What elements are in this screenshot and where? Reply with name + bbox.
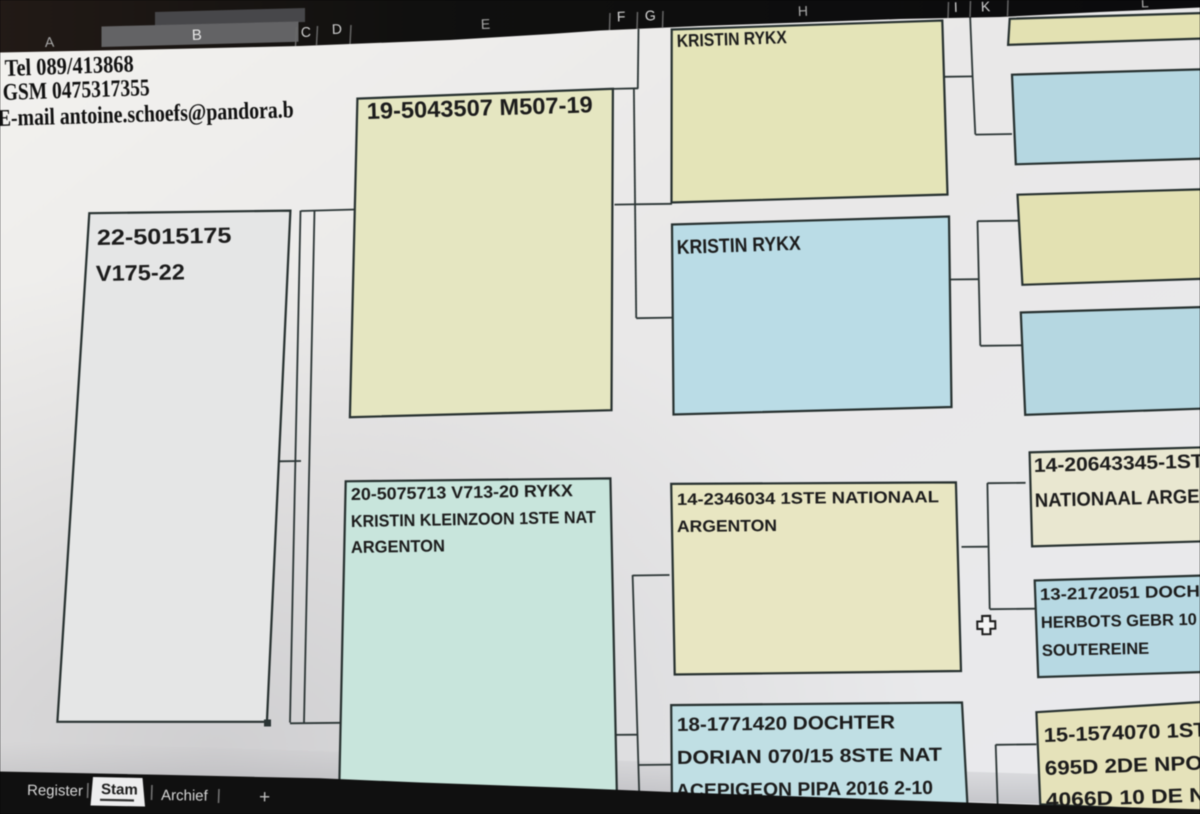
svg-text:C: C xyxy=(301,24,312,40)
svg-text:KRISTIN RYKX: KRISTIN RYKX xyxy=(676,27,787,51)
svg-text:F: F xyxy=(617,8,626,24)
svg-text:HERBOTS GEBR 10: HERBOTS GEBR 10 xyxy=(1041,611,1197,632)
svg-text:22-5015175: 22-5015175 xyxy=(97,223,232,250)
svg-text:V175-22: V175-22 xyxy=(96,259,185,286)
svg-text:K: K xyxy=(981,0,992,14)
svg-text:I: I xyxy=(954,0,958,15)
svg-text:Archief: Archief xyxy=(161,787,209,805)
svg-text:20-5075713 V713-20 RYKX: 20-5075713 V713-20 RYKX xyxy=(351,481,574,504)
svg-text:G: G xyxy=(645,7,656,23)
svg-text:Register: Register xyxy=(27,782,83,800)
svg-text:Stam: Stam xyxy=(101,781,138,799)
svg-text:14-2346034 1STE NATIONAAL: 14-2346034 1STE NATIONAAL xyxy=(677,488,939,509)
svg-text:SOUTEREINE: SOUTEREINE xyxy=(1042,640,1150,660)
svg-text:L: L xyxy=(1141,0,1150,10)
svg-text:KRISTIN RYKX: KRISTIN RYKX xyxy=(676,233,801,259)
svg-text:H: H xyxy=(798,3,809,19)
svg-text:A: A xyxy=(45,34,56,50)
svg-text:ARGENTON: ARGENTON xyxy=(677,517,777,536)
svg-text:DORIAN 070/15 8STE NAT: DORIAN 070/15 8STE NAT xyxy=(677,745,943,769)
svg-text:E: E xyxy=(481,16,491,32)
svg-text:ARGENTON: ARGENTON xyxy=(351,536,445,557)
svg-text:NATIONAAL ARGEN: NATIONAAL ARGEN xyxy=(1035,485,1200,512)
svg-text:13-2172051 DOCH: 13-2172051 DOCH xyxy=(1040,583,1200,604)
svg-text:14-20643345-1ST: 14-20643345-1ST xyxy=(1034,451,1200,477)
svg-text:18-1771420 DOCHTER: 18-1771420 DOCHTER xyxy=(677,712,896,736)
svg-text:D: D xyxy=(332,21,343,37)
svg-text:+: + xyxy=(259,787,270,808)
svg-text:B: B xyxy=(192,27,203,44)
